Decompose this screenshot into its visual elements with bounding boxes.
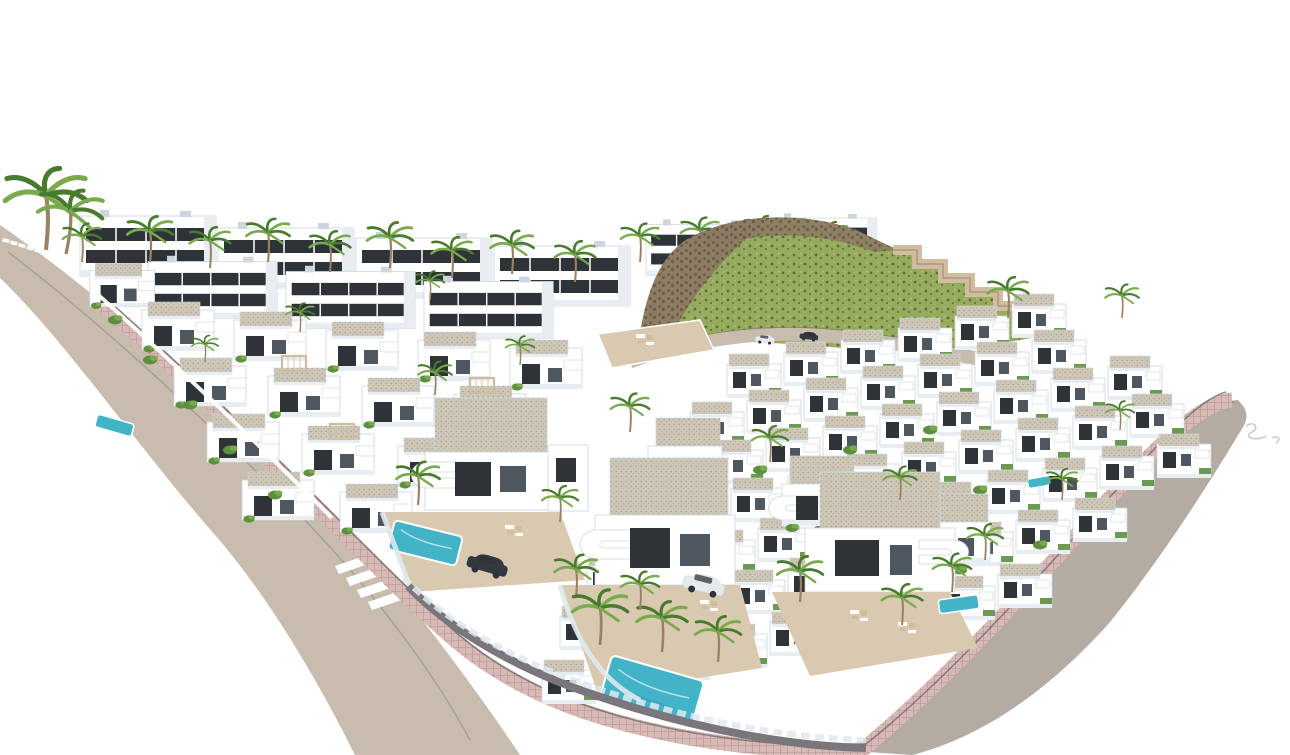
villa-block [286,266,415,329]
glazing [680,534,710,566]
gravel-roof [610,458,728,518]
glazing [630,528,670,568]
glazing [890,545,912,575]
gravel-roof [435,398,547,454]
villa-block [424,276,553,339]
gravel-roof [820,472,940,530]
glazing [500,466,526,492]
glazing [556,458,576,482]
glazing [455,462,491,496]
glazing [835,540,879,576]
aerial-development-render [0,0,1290,755]
